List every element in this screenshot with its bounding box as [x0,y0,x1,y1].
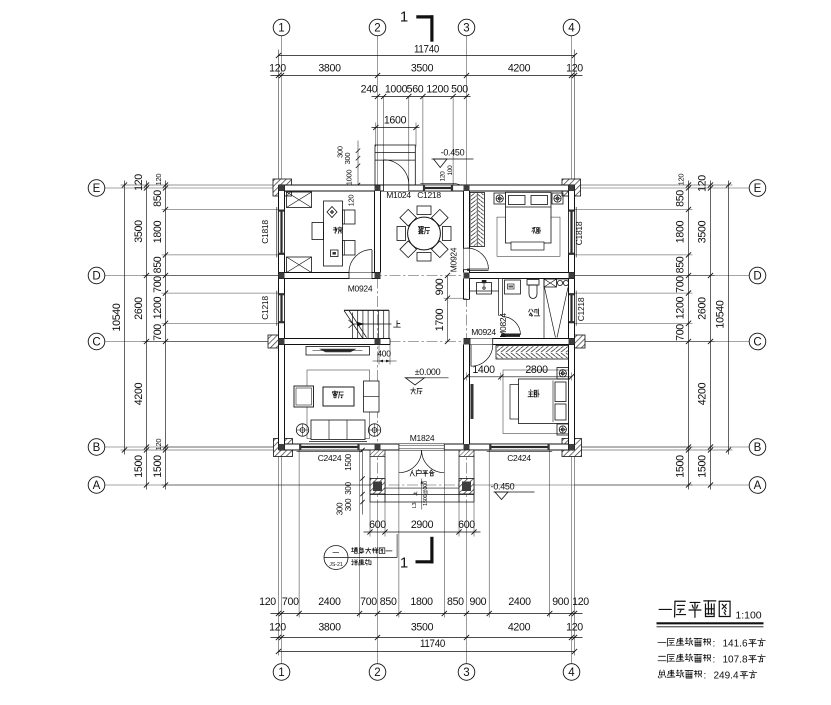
svg-text:4: 4 [568,23,575,35]
svg-text:2400: 2400 [318,596,341,608]
svg-text:3500: 3500 [411,63,434,75]
svg-text:E: E [93,183,101,195]
svg-text:300: 300 [344,498,353,511]
svg-text:D: D [753,271,761,283]
svg-text:L3: L3 [412,503,418,509]
svg-text:1400: 1400 [472,364,495,376]
svg-text:300: 300 [343,153,352,165]
svg-text:1500: 1500 [344,453,353,470]
svg-text:4200: 4200 [697,382,709,405]
svg-text:A: A [93,480,101,492]
svg-text:1800: 1800 [675,220,687,243]
svg-text:2800: 2800 [525,364,548,376]
svg-text:1200: 1200 [426,84,449,96]
svg-text:850: 850 [152,256,164,273]
svg-text:M0924: M0924 [449,247,459,272]
svg-text:C1218: C1218 [260,296,270,320]
svg-text:M1824: M1824 [410,433,435,443]
svg-text:1200: 1200 [152,296,164,319]
svg-text:3: 3 [463,23,469,35]
svg-text:1: 1 [278,23,284,35]
svg-text:1200: 1200 [675,296,687,319]
svg-text:2900: 2900 [411,519,434,531]
svg-text:249.4: 249.4 [714,670,739,681]
svg-text:400: 400 [377,349,391,359]
svg-text:850: 850 [447,596,464,608]
svg-text:C1218: C1218 [417,190,441,200]
svg-text:2: 2 [374,23,380,35]
svg-text:700: 700 [360,596,377,608]
svg-text:A: A [754,480,762,492]
svg-text:700: 700 [675,324,687,341]
svg-text:120: 120 [154,174,163,186]
svg-text:300: 300 [344,481,353,494]
svg-text:1000: 1000 [345,170,354,186]
svg-text:2: 2 [374,667,380,679]
svg-text:4200: 4200 [508,63,531,75]
svg-text:700: 700 [152,276,164,293]
svg-text:C2424: C2424 [507,453,531,463]
svg-text:1000: 1000 [385,84,408,96]
svg-text:1800: 1800 [152,220,164,243]
svg-text:141.6: 141.6 [723,638,748,649]
svg-text:1: 1 [400,555,408,572]
svg-text:120: 120 [566,63,583,75]
svg-text:120: 120 [133,174,145,191]
svg-text:600: 600 [369,519,386,531]
svg-text:2600: 2600 [697,297,709,320]
svg-text:C1818: C1818 [260,220,270,244]
svg-text:3800: 3800 [318,63,341,75]
svg-text:120: 120 [259,596,276,608]
svg-text:4200: 4200 [133,382,145,405]
svg-text:C2424: C2424 [318,453,342,463]
svg-text:850: 850 [152,190,164,207]
svg-text:3500: 3500 [697,220,709,243]
svg-text:C: C [753,337,761,349]
svg-text:10540: 10540 [111,303,123,331]
svg-text:1600: 1600 [384,115,407,127]
svg-text:1500: 1500 [152,455,164,478]
svg-text:120: 120 [269,63,286,75]
svg-text:900: 900 [434,278,446,295]
svg-text:850: 850 [675,190,687,207]
svg-text:120: 120 [697,175,709,192]
svg-text:C: C [92,337,100,349]
svg-text:D: D [92,271,100,283]
svg-text:700: 700 [675,276,687,293]
svg-text:700: 700 [282,596,299,608]
svg-text:B: B [754,442,762,454]
svg-text:850: 850 [380,596,397,608]
svg-text:600: 600 [458,519,475,531]
svg-text:1:100: 1:100 [735,610,761,622]
svg-text::: : [713,654,716,665]
svg-text:500: 500 [451,84,468,96]
svg-text:300: 300 [336,502,345,515]
svg-text:1800: 1800 [410,596,433,608]
svg-text:1500@300: 1500@300 [423,481,429,506]
svg-text:900: 900 [470,596,487,608]
svg-text:120: 120 [566,622,583,634]
svg-text:-0.450: -0.450 [491,482,515,492]
svg-text:C1818: C1818 [574,221,584,245]
svg-text:1: 1 [400,9,408,26]
svg-text::: : [713,638,716,649]
svg-text:M0924: M0924 [471,327,496,337]
svg-text:11740: 11740 [420,638,445,650]
svg-text:3: 3 [463,667,469,679]
svg-text:1500: 1500 [697,455,709,478]
svg-text:11740: 11740 [414,44,439,56]
svg-text:120: 120 [677,174,686,186]
svg-text:4200: 4200 [508,622,531,634]
svg-text:M1024: M1024 [386,190,411,200]
svg-text:E: E [754,183,762,195]
svg-text:107.8: 107.8 [723,654,748,665]
svg-text:1500: 1500 [675,455,687,478]
svg-text:M0824: M0824 [498,313,508,338]
svg-text::: : [704,670,707,681]
svg-text:1: 1 [278,667,284,679]
svg-text:120: 120 [440,171,447,182]
svg-text:±0.000: ±0.000 [415,367,441,377]
svg-text:700: 700 [152,324,164,341]
svg-text:10540: 10540 [715,300,727,328]
svg-text:-0.450: -0.450 [441,148,465,158]
svg-text:3500: 3500 [411,622,434,634]
svg-text:560: 560 [407,84,424,96]
svg-text:C1218: C1218 [576,297,586,321]
svg-text:1500: 1500 [133,455,145,478]
svg-text:3500: 3500 [133,220,145,243]
svg-text:4: 4 [568,667,575,679]
svg-text:120: 120 [269,622,286,634]
svg-text:1700: 1700 [434,308,446,331]
svg-text:3800: 3800 [318,622,341,634]
svg-text:100: 100 [447,165,454,176]
svg-text:M0924: M0924 [348,284,373,294]
svg-text:B: B [93,442,101,454]
svg-text:120: 120 [347,195,356,207]
svg-text:900: 900 [552,596,569,608]
svg-text:2600: 2600 [133,297,145,320]
svg-text:120: 120 [572,596,589,608]
svg-text:JS-21: JS-21 [329,562,343,568]
svg-text:240: 240 [361,84,378,96]
svg-text:850: 850 [675,256,687,273]
svg-text:2400: 2400 [508,596,531,608]
svg-text:120: 120 [154,439,163,451]
